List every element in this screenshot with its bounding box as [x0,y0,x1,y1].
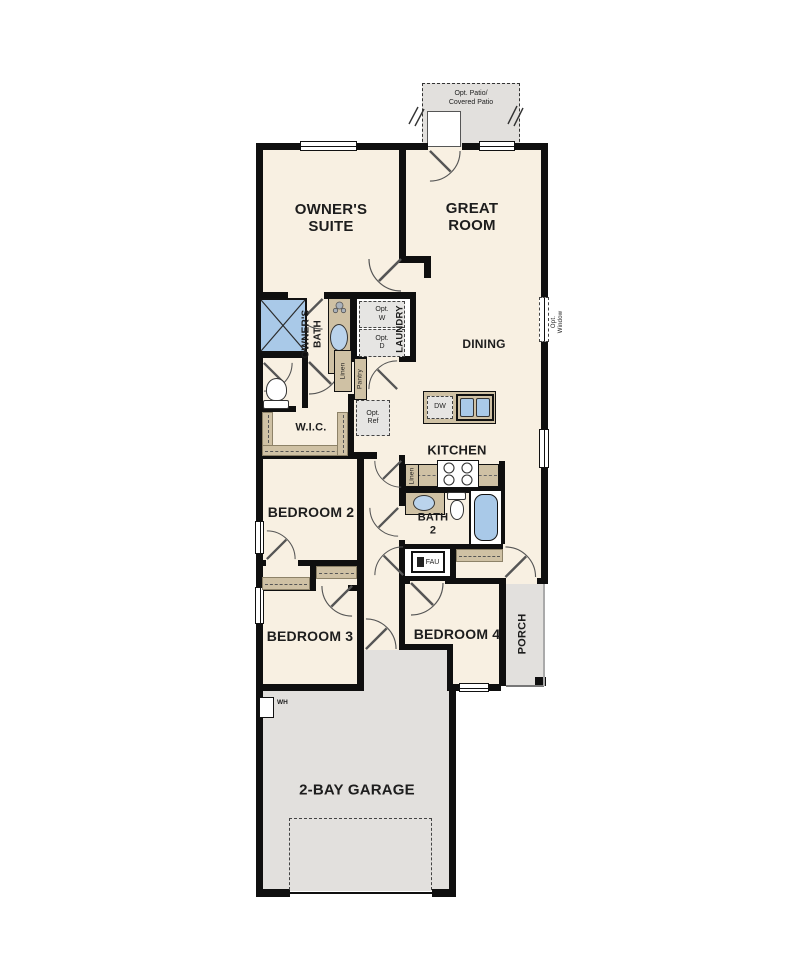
fau-label: FAU [426,559,440,566]
bedroom2-closet-shelf [262,577,310,590]
wall [256,684,364,691]
owners-suite-label: OWNER'S SUITE [285,201,377,236]
wall [541,143,548,298]
wall [499,461,505,490]
window-dining [539,429,549,468]
optional-window-label: Opt. Window [551,311,565,334]
window-optional-dining [539,297,549,342]
wall [399,644,453,650]
break-line-icon [405,102,431,130]
pantry-label: Pantry [356,369,363,389]
door-bedroom3 [320,585,354,617]
fau-vent-icon [417,557,424,567]
door-laundry [367,360,399,390]
water-heater-icon [259,697,274,718]
window-great-room [479,141,515,151]
bedroom4-label: BEDROOM 4 [414,626,501,642]
patio-step [427,111,461,147]
wic-shelf [262,445,348,456]
porch-edge [543,584,545,686]
toilet-bath2-icon [450,500,464,520]
wall [256,624,263,896]
wall [410,292,416,362]
opt-dryer-label: Opt. [375,335,388,343]
garage-door-dash [431,818,432,890]
bedroom3-label: BEDROOM 3 [267,628,354,644]
opt-washer-label: W [379,315,386,323]
door-owners-suite [368,258,402,292]
wall [256,560,266,566]
floor-plan: Opt. Patio/ Covered Patio [0,0,793,968]
toilet-tank [263,400,289,409]
great-room-label: GREAT ROOM [434,200,510,235]
door-bedroom4 [410,582,444,616]
bath2-label: BATH 2 [418,511,449,536]
optional-refrigerator: Opt. Ref [356,400,390,436]
wall [357,143,428,150]
wall [432,889,456,897]
stove-icon [437,460,479,488]
kitchen-label: KITCHEN [427,444,486,459]
garage-door-sill [290,892,432,894]
break-line-icon [503,100,531,130]
sink-bath2-icon [413,495,435,511]
wall [541,342,548,430]
door-front-entry [504,546,537,578]
wall [447,650,453,691]
linen-bath-label: Linen [339,363,346,380]
opt-ref-label: Opt. [366,410,379,418]
wall [424,256,431,278]
opt-ref-label: Ref [368,418,379,426]
faucet-icon [332,301,347,314]
owners-bath-label: OWNER'S BATH [301,306,324,362]
porch-label: PORCH [517,614,530,655]
wic-shelf [337,412,348,456]
laundry-label: LAUNDRY [396,305,407,353]
wall [449,691,456,896]
wall [541,468,548,584]
window-bedroom4 [459,683,489,692]
wall [256,889,290,897]
wall [351,292,357,358]
wall [445,578,503,584]
wall [399,578,405,650]
window-bedroom2 [255,521,264,554]
door-bath2 [369,506,399,538]
linen-kitchen-label: Linen [408,468,415,485]
sink-owners-bath-icon [330,324,348,351]
dishwasher-label: DW [434,403,446,411]
door-bedroom2 [266,530,296,560]
wall [357,452,364,691]
door-fau-closet [374,546,404,576]
door-patio [429,150,461,182]
dishwasher: DW [427,396,453,419]
window-bedroom3 [255,587,264,624]
garage-label: 2-BAY GARAGE [299,781,415,798]
porch-edge [506,685,544,687]
fau-unit: FAU [411,551,445,573]
door-kitchen-hall [374,460,402,488]
entry-closet-shelf [456,549,503,562]
toilet-owners-icon [266,378,287,401]
window-owners-suite [300,141,357,151]
wall [348,394,354,458]
bedroom2-label: BEDROOM 2 [268,504,355,520]
bathtub-icon [474,494,498,541]
opt-washer-label: Opt. [375,306,388,314]
wall [399,143,406,258]
wic-label: W.I.C. [295,422,326,435]
garage-door-dash [289,818,432,819]
door-garage-entry [365,618,397,650]
garage-door-dash [289,818,290,890]
bedroom2-closet-shelf [316,566,357,579]
wall [462,143,479,150]
opt-dryer-label: D [379,343,384,351]
garage-vestibule-floor [364,650,447,691]
water-heater-label: WH [277,699,288,706]
kitchen-sink-icon [456,394,494,421]
dining-label: DINING [462,338,505,352]
toilet2-tank [447,492,466,500]
